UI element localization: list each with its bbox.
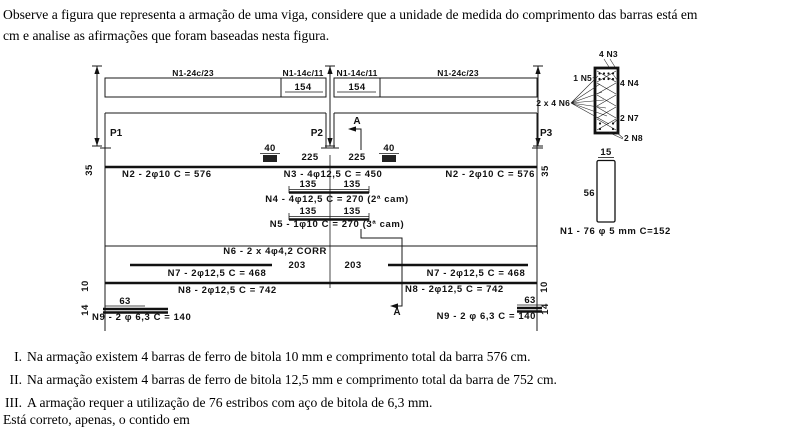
intro-paragraph: Observe a figura que representa a armaçã… [3, 4, 787, 46]
dim-135-r1b: 135 [343, 179, 360, 190]
label-n7-right: N7 - 2φ12,5 C = 468 [427, 268, 526, 279]
zone-left-inner-length: 154 [294, 82, 311, 93]
label-n2-left: N2 - 2φ10 C = 576 [122, 169, 212, 180]
dim-63-right: 63 [524, 295, 535, 306]
statement-2: II.Na armação existem 4 barras de ferro … [0, 368, 557, 391]
dim-225-left: 225 [301, 152, 318, 163]
dim-15: 15 [600, 147, 612, 158]
column-p2-label: P2 [311, 128, 324, 139]
dim-14-right: 14 [540, 303, 551, 315]
label-n6: N6 - 2 x 4φ4,2 CORR [223, 246, 327, 257]
dim-10-right: 10 [539, 281, 550, 292]
statement-2-text: Na armação existem 4 barras de ferro de … [27, 372, 557, 387]
dim-40-right: 40 [383, 143, 394, 154]
zone-right-inner-length: 154 [348, 82, 365, 93]
dim-135-r2b: 135 [343, 206, 360, 217]
section-a-bottom-label: A [393, 307, 400, 318]
dim-203-right: 203 [344, 260, 361, 271]
statement-1: I.Na armação existem 4 barras de ferro d… [0, 345, 557, 368]
column-p3-label: P3 [540, 128, 553, 139]
statement-3: III.A armação requer a utilização de 76 … [0, 391, 557, 414]
label-n4: N4 - 4φ12,5 C = 270 (2ª cam) [265, 194, 409, 205]
dim-135-r2a: 135 [299, 206, 316, 217]
dim-63-left: 63 [119, 296, 130, 307]
cross-section-detail: 4 N3 1 N5 4 N4 2 x 4 N6 2 N7 2 N8 [536, 49, 643, 143]
zone-left-inner: N1-14c/11 [282, 68, 323, 78]
section-label-4n3: 4 N3 [599, 49, 618, 59]
zone-right-inner: N1-14c/11 [336, 68, 377, 78]
statement-2-numeral: II. [0, 368, 22, 391]
label-n1-stirrup: N1 - 76 φ 5 mm C=152 [560, 226, 671, 237]
statement-1-text: Na armação existem 4 barras de ferro de … [27, 349, 531, 364]
dim-56: 56 [584, 188, 595, 199]
dim-40-left: 40 [264, 143, 275, 154]
bottom-reinforcement: 10 10 N8 - 2φ12,5 C = 742 N8 - 2φ12,5 C … [80, 280, 551, 323]
dim-14-left: 14 [80, 304, 91, 316]
dim-135-r1a: 135 [299, 179, 316, 190]
dim-225-right: 225 [348, 152, 365, 163]
section-label-1n5: 1 N5 [573, 73, 592, 83]
section-label-2n7: 2 N7 [620, 113, 639, 123]
top-reinforcement: 40 40 225 225 35 35 N2 - 2φ10 C = 576 N3… [84, 143, 551, 230]
stirrup-detail: 15 56 N1 - 76 φ 5 mm C=152 [560, 147, 671, 237]
intro-line2: cm e analise as afirmações que foram bas… [3, 28, 329, 43]
label-n7-left: N7 - 2φ12,5 C = 468 [168, 268, 267, 279]
intro-line1: Observe a figura que representa a armaçã… [3, 7, 698, 22]
label-n9-right: N9 - 2 φ 6,3 C = 140 [437, 311, 536, 322]
column-p1-label: P1 [110, 128, 123, 139]
zone-right-outer: N1-24c/23 [437, 68, 479, 78]
section-label-2x4n6: 2 x 4 N6 [536, 98, 570, 108]
label-n3: N3 - 4φ12,5 C = 450 [284, 169, 383, 180]
question-page: Observe a figura que representa a armaçã… [0, 0, 789, 437]
label-n9-left: N9 - 2 φ 6,3 C = 140 [92, 312, 191, 323]
mid-reinforcement: N6 - 2 x 4φ4,2 CORR 203 203 N7 - 2φ12,5 … [105, 246, 537, 279]
statement-1-numeral: I. [0, 345, 22, 368]
label-n2-right: N2 - 2φ10 C = 576 [445, 169, 535, 180]
n6-pointer-fan [571, 76, 609, 124]
dim-35-left: 35 [84, 164, 95, 176]
statement-3-text: A armação requer a utilização de 76 estr… [27, 395, 432, 410]
dim-10-left: 10 [80, 280, 91, 291]
stirrup-distribution: N1-24c/23 N1-14c/11 N1-14c/11 N1-24c/23 … [105, 68, 537, 97]
beam-reinforcement-diagram: N1-24c/23 N1-14c/11 N1-14c/11 N1-24c/23 … [80, 48, 789, 337]
label-n5: N5 - 1φ10 C = 270 (3ª cam) [270, 219, 404, 230]
zone-left-outer: N1-24c/23 [172, 68, 214, 78]
dim-35-right: 35 [540, 165, 551, 177]
section-a-top-label: A [353, 116, 360, 127]
closing-line: Está correto, apenas, o contido em [3, 412, 190, 428]
dim-203-left: 203 [288, 260, 305, 271]
statement-3-numeral: III. [0, 391, 22, 414]
label-n8-left: N8 - 2φ12,5 C = 742 [178, 285, 277, 296]
section-label-4n4: 4 N4 [620, 78, 639, 88]
statements-list: I.Na armação existem 4 barras de ferro d… [0, 345, 557, 414]
label-n8-right: N8 - 2φ12,5 C = 742 [405, 284, 504, 295]
section-label-2n8: 2 N8 [624, 133, 643, 143]
